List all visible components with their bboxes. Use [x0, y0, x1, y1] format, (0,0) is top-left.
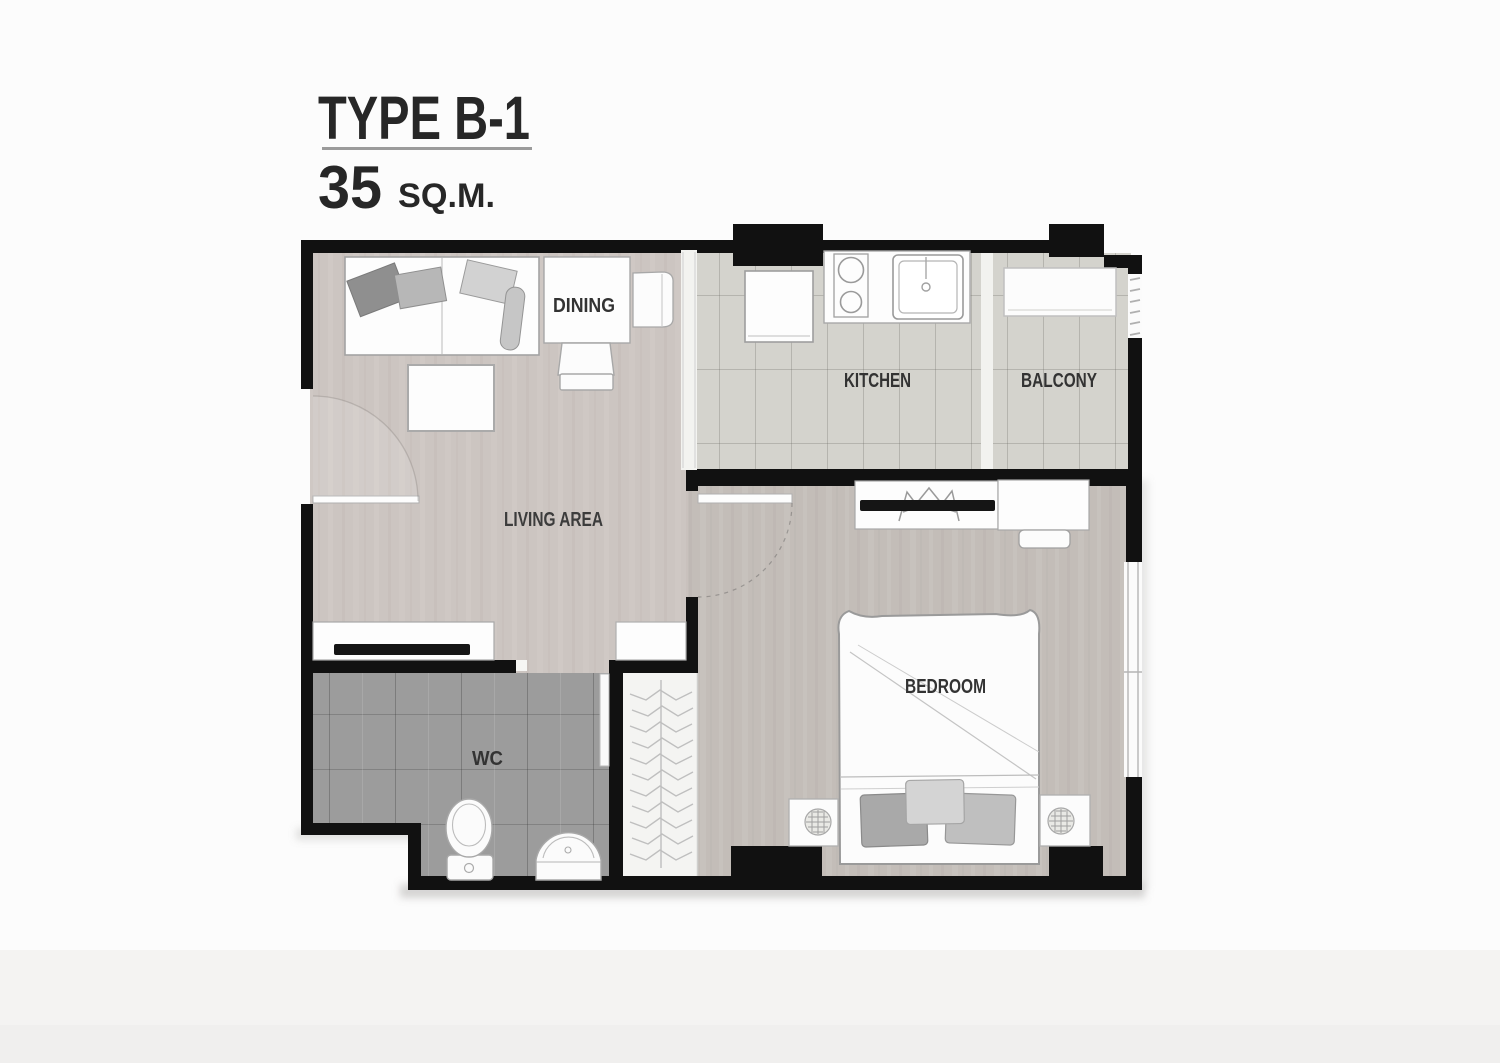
svg-text:DINING: DINING [553, 295, 615, 317]
svg-text:TYPE B-1: TYPE B-1 [318, 84, 530, 152]
svg-text:SQ.M.: SQ.M. [398, 177, 495, 215]
svg-text:BALCONY: BALCONY [1021, 370, 1098, 392]
svg-text:WC: WC [472, 748, 503, 770]
svg-text:KITCHEN: KITCHEN [844, 370, 911, 392]
svg-text:LIVING AREA: LIVING AREA [504, 509, 603, 531]
svg-text:35: 35 [318, 154, 382, 221]
svg-text:BEDROOM: BEDROOM [905, 676, 986, 698]
